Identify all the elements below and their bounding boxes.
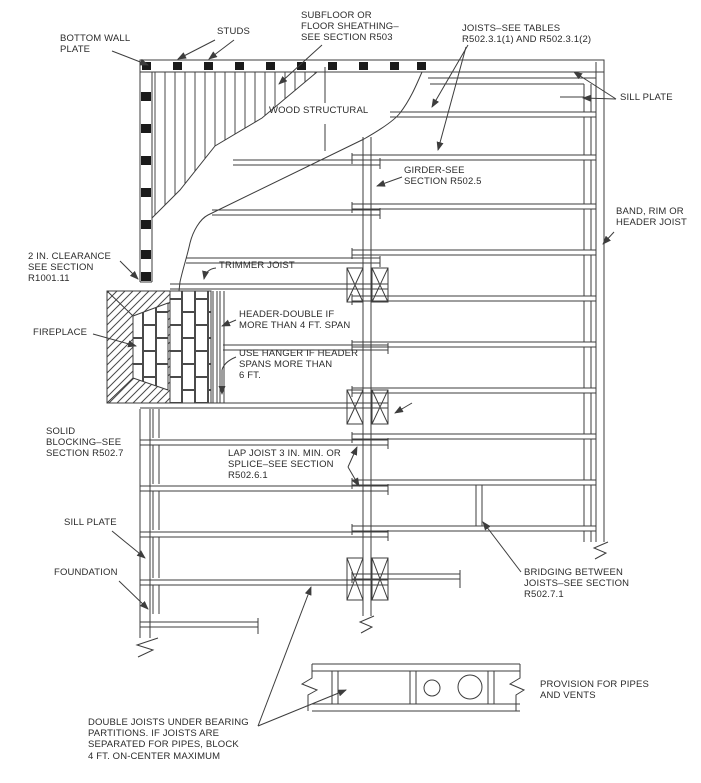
label-band-rim: BAND, RIM OR HEADER JOIST bbox=[616, 206, 687, 228]
firebox-bricks bbox=[133, 303, 168, 390]
diagram-linework bbox=[0, 0, 701, 783]
band-rim-joist bbox=[594, 60, 608, 559]
leader-sill-plate-2 bbox=[583, 98, 616, 99]
label-trimmer-joist: TRIMMER JOIST bbox=[219, 260, 295, 271]
leader-studs-2 bbox=[209, 40, 234, 59]
label-solid-blocking: SOLID BLOCKING–SEE SECTION R502.7 bbox=[46, 426, 124, 460]
leader-joists-1 bbox=[432, 45, 468, 107]
label-use-hanger: USE HANGER IF HEADER SPANS MORE THAN 6 F… bbox=[239, 348, 358, 382]
label-clearance: 2 IN. CLEARANCE SEE SECTION R1001.11 bbox=[28, 251, 111, 285]
foundation-wall bbox=[137, 409, 159, 657]
label-bottom-wall-plate: BOTTOM WALL PLATE bbox=[60, 33, 130, 55]
bridging-blocking bbox=[476, 485, 482, 526]
foundation-break-symbol bbox=[137, 638, 158, 657]
leader-clearance bbox=[120, 261, 138, 279]
label-fireplace: FIREPLACE bbox=[33, 327, 87, 338]
stud-blocks-left bbox=[141, 92, 151, 281]
stud-blocks-top bbox=[142, 62, 426, 70]
leader-lap-3 bbox=[395, 403, 412, 413]
rim-break-symbol bbox=[594, 542, 608, 559]
leader-lap-2 bbox=[348, 467, 359, 486]
leader-trimmer bbox=[204, 268, 216, 279]
pipes-vents-detail bbox=[302, 664, 524, 711]
label-bridging: BRIDGING BETWEEN JOISTS–SEE SECTION R502… bbox=[524, 567, 629, 601]
hearth-bricks bbox=[170, 291, 211, 403]
label-sill-plate-bottom: SILL PLATE bbox=[64, 517, 117, 528]
leader-sill-plate-1 bbox=[574, 72, 616, 99]
leader-double-joists-1 bbox=[258, 587, 311, 726]
label-header-double: HEADER-DOUBLE IF MORE THAN 4 FT. SPAN bbox=[239, 309, 350, 331]
label-wood-structural: WOOD STRUCTURAL bbox=[269, 105, 368, 116]
label-double-joists: DOUBLE JOISTS UNDER BEARING PARTITIONS. … bbox=[88, 717, 249, 762]
leader-double-joists-2 bbox=[258, 690, 346, 726]
pipe-hole-large bbox=[458, 675, 482, 699]
leader-joists-2 bbox=[438, 47, 466, 150]
floor-framing-diagram: BOTTOM WALL PLATE STUDS SUBFLOOR OR FLOO… bbox=[0, 0, 701, 783]
label-joists: JOISTS–SEE TABLES R502.3.1(1) AND R502.3… bbox=[462, 23, 591, 45]
label-provision: PROVISION FOR PIPES AND VENTS bbox=[540, 679, 649, 701]
girder-break-symbol bbox=[360, 616, 374, 633]
leader-bridging bbox=[483, 522, 521, 572]
optional-finish-floor-hatch bbox=[152, 72, 317, 218]
label-girder: GIRDER-SEE SECTION R502.5 bbox=[404, 165, 482, 187]
leader-girder bbox=[377, 177, 402, 186]
leader-lap-1 bbox=[348, 447, 357, 467]
label-lap-joist: LAP JOIST 3 IN. MIN. OR SPLICE–SEE SECTI… bbox=[228, 448, 341, 482]
pipe-hole-small bbox=[424, 680, 440, 696]
label-foundation: FOUNDATION bbox=[54, 567, 118, 578]
fireplace-masonry bbox=[107, 291, 224, 403]
label-sill-plate-top: SILL PLATE bbox=[620, 92, 673, 103]
leader-band-rim bbox=[603, 232, 614, 244]
label-subfloor: SUBFLOOR OR FLOOR SHEATHING– SEE SECTION… bbox=[301, 10, 399, 44]
rim-joist-end-blocks bbox=[584, 84, 591, 542]
label-studs: STUDS bbox=[217, 26, 250, 37]
leader-studs-1 bbox=[178, 40, 215, 59]
